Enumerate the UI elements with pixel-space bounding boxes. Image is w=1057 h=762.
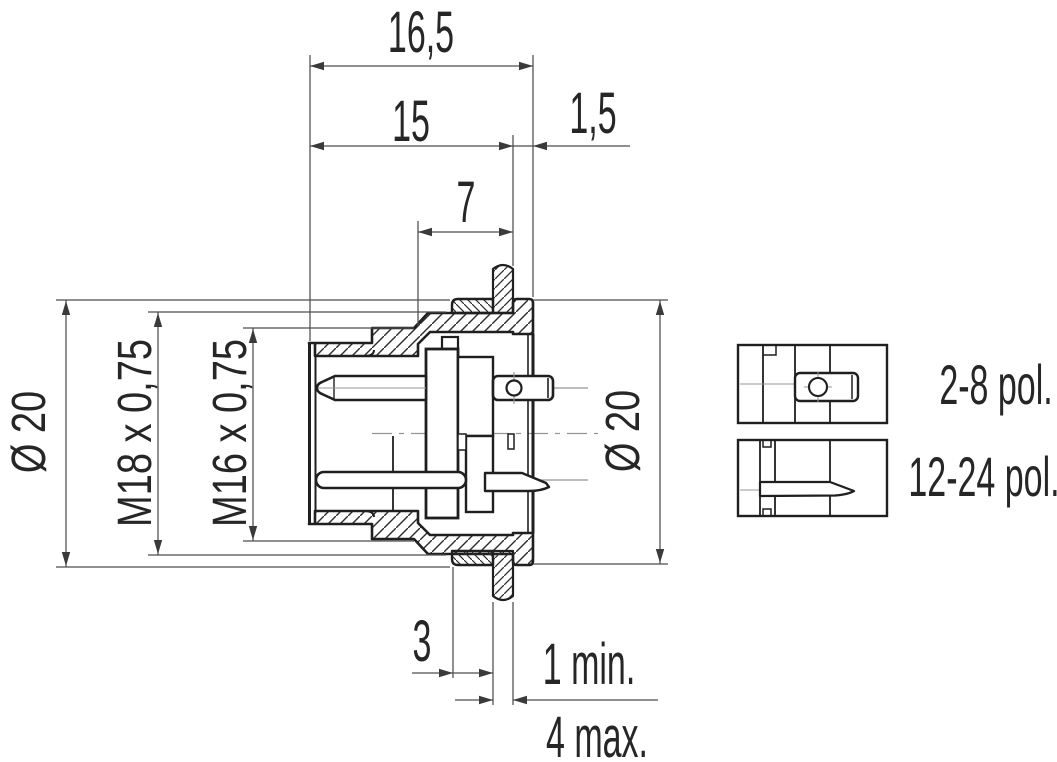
dim-label-1-min: 1 min. [543,633,636,698]
solder-cup [493,376,553,400]
dim-label-3: 3 [413,610,432,675]
main-section-view [309,265,553,600]
connector-technical-drawing: 16,5 15 1,5 7 3 1 min. 4 max. Ø 20 M18 x… [0,0,1057,762]
locknut-section-bottom [452,551,493,565]
dim-label-dia20-left: Ø 20 [3,391,56,473]
detail-view-2-8-pol: 2-8 pol. [738,345,1053,423]
technical-drawing-page: 16,5 15 1,5 7 3 1 min. 4 max. Ø 20 M18 x… [0,0,1057,762]
detail-solder-cup-hole [809,378,827,396]
detail-view-12-24-pol: 12-24 pol. [738,440,1057,516]
dim-label-1-5: 1,5 [569,82,616,147]
shell-front-wall [310,343,375,524]
dim-label-dia20-right: Ø 20 [597,390,650,472]
variant-label-2-8-pol: 2-8 pol. [939,353,1052,416]
lower-contact-pin [316,472,549,491]
pin-front-flat [316,472,466,488]
dim-label-m18: M18 x 0,75 [109,339,162,527]
variant-label-12-24-pol: 12-24 pol. [908,445,1057,508]
dim-label-16-5: 16,5 [388,1,454,66]
dim-label-m16: M16 x 0,75 [204,339,257,527]
dim-label-15: 15 [392,90,430,155]
panel-section-top [493,265,513,313]
locknut-section-top [452,299,493,313]
dim-label-7: 7 [457,171,476,236]
solder-lug [485,473,549,491]
dim-label-4-max: 4 max. [546,706,648,762]
solder-cup-hole [507,381,522,396]
panel-section-bottom [493,551,513,600]
